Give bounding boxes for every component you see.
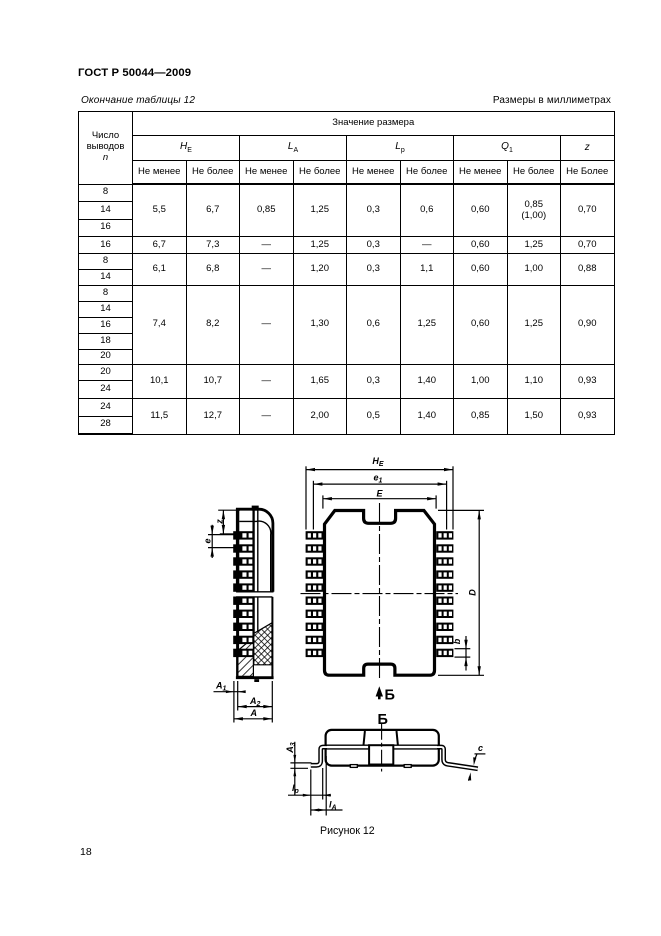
svg-text:lp: lp <box>292 783 300 795</box>
svg-text:A: A <box>250 708 258 718</box>
svg-text:Рисунок 12: Рисунок 12 <box>320 825 375 837</box>
svg-text:e: e <box>203 538 213 543</box>
svg-text:A1: A1 <box>215 681 227 693</box>
svg-text:HE: HE <box>372 456 384 468</box>
svg-text:D: D <box>468 589 478 596</box>
svg-text:Б: Б <box>385 688 395 704</box>
svg-text:c: c <box>478 743 483 753</box>
svg-text:b: b <box>452 638 462 644</box>
svg-text:E: E <box>376 489 383 499</box>
svg-text:z: z <box>215 519 225 525</box>
svg-text:e1: e1 <box>374 473 383 485</box>
svg-text:Б: Б <box>378 712 388 728</box>
